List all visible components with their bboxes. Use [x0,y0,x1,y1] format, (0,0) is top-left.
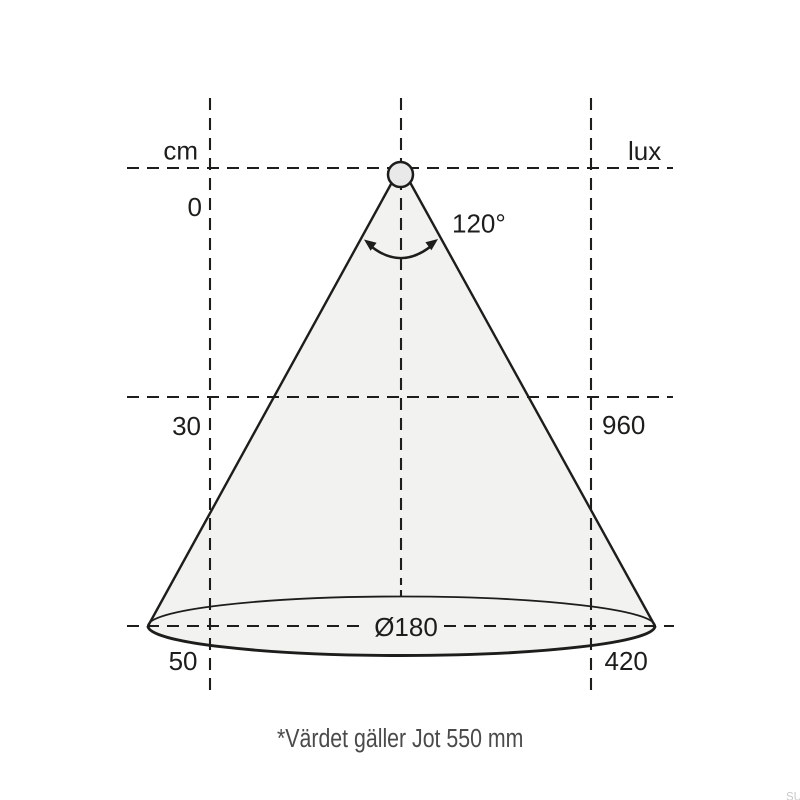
svg-text:30: 30 [172,411,201,441]
svg-text:50: 50 [169,646,198,676]
svg-text:lux: lux [628,136,661,166]
svg-text:960: 960 [602,410,645,440]
svg-text:*Värdet gäller Jot 550 mm: *Värdet gäller Jot 550 mm [277,724,523,754]
svg-text:0: 0 [188,192,202,222]
svg-text:420: 420 [605,646,648,676]
svg-text:Ø180: Ø180 [374,612,438,642]
svg-text:SU: SU [786,792,800,800]
svg-text:cm: cm [163,136,198,166]
svg-text:120°: 120° [452,209,506,239]
